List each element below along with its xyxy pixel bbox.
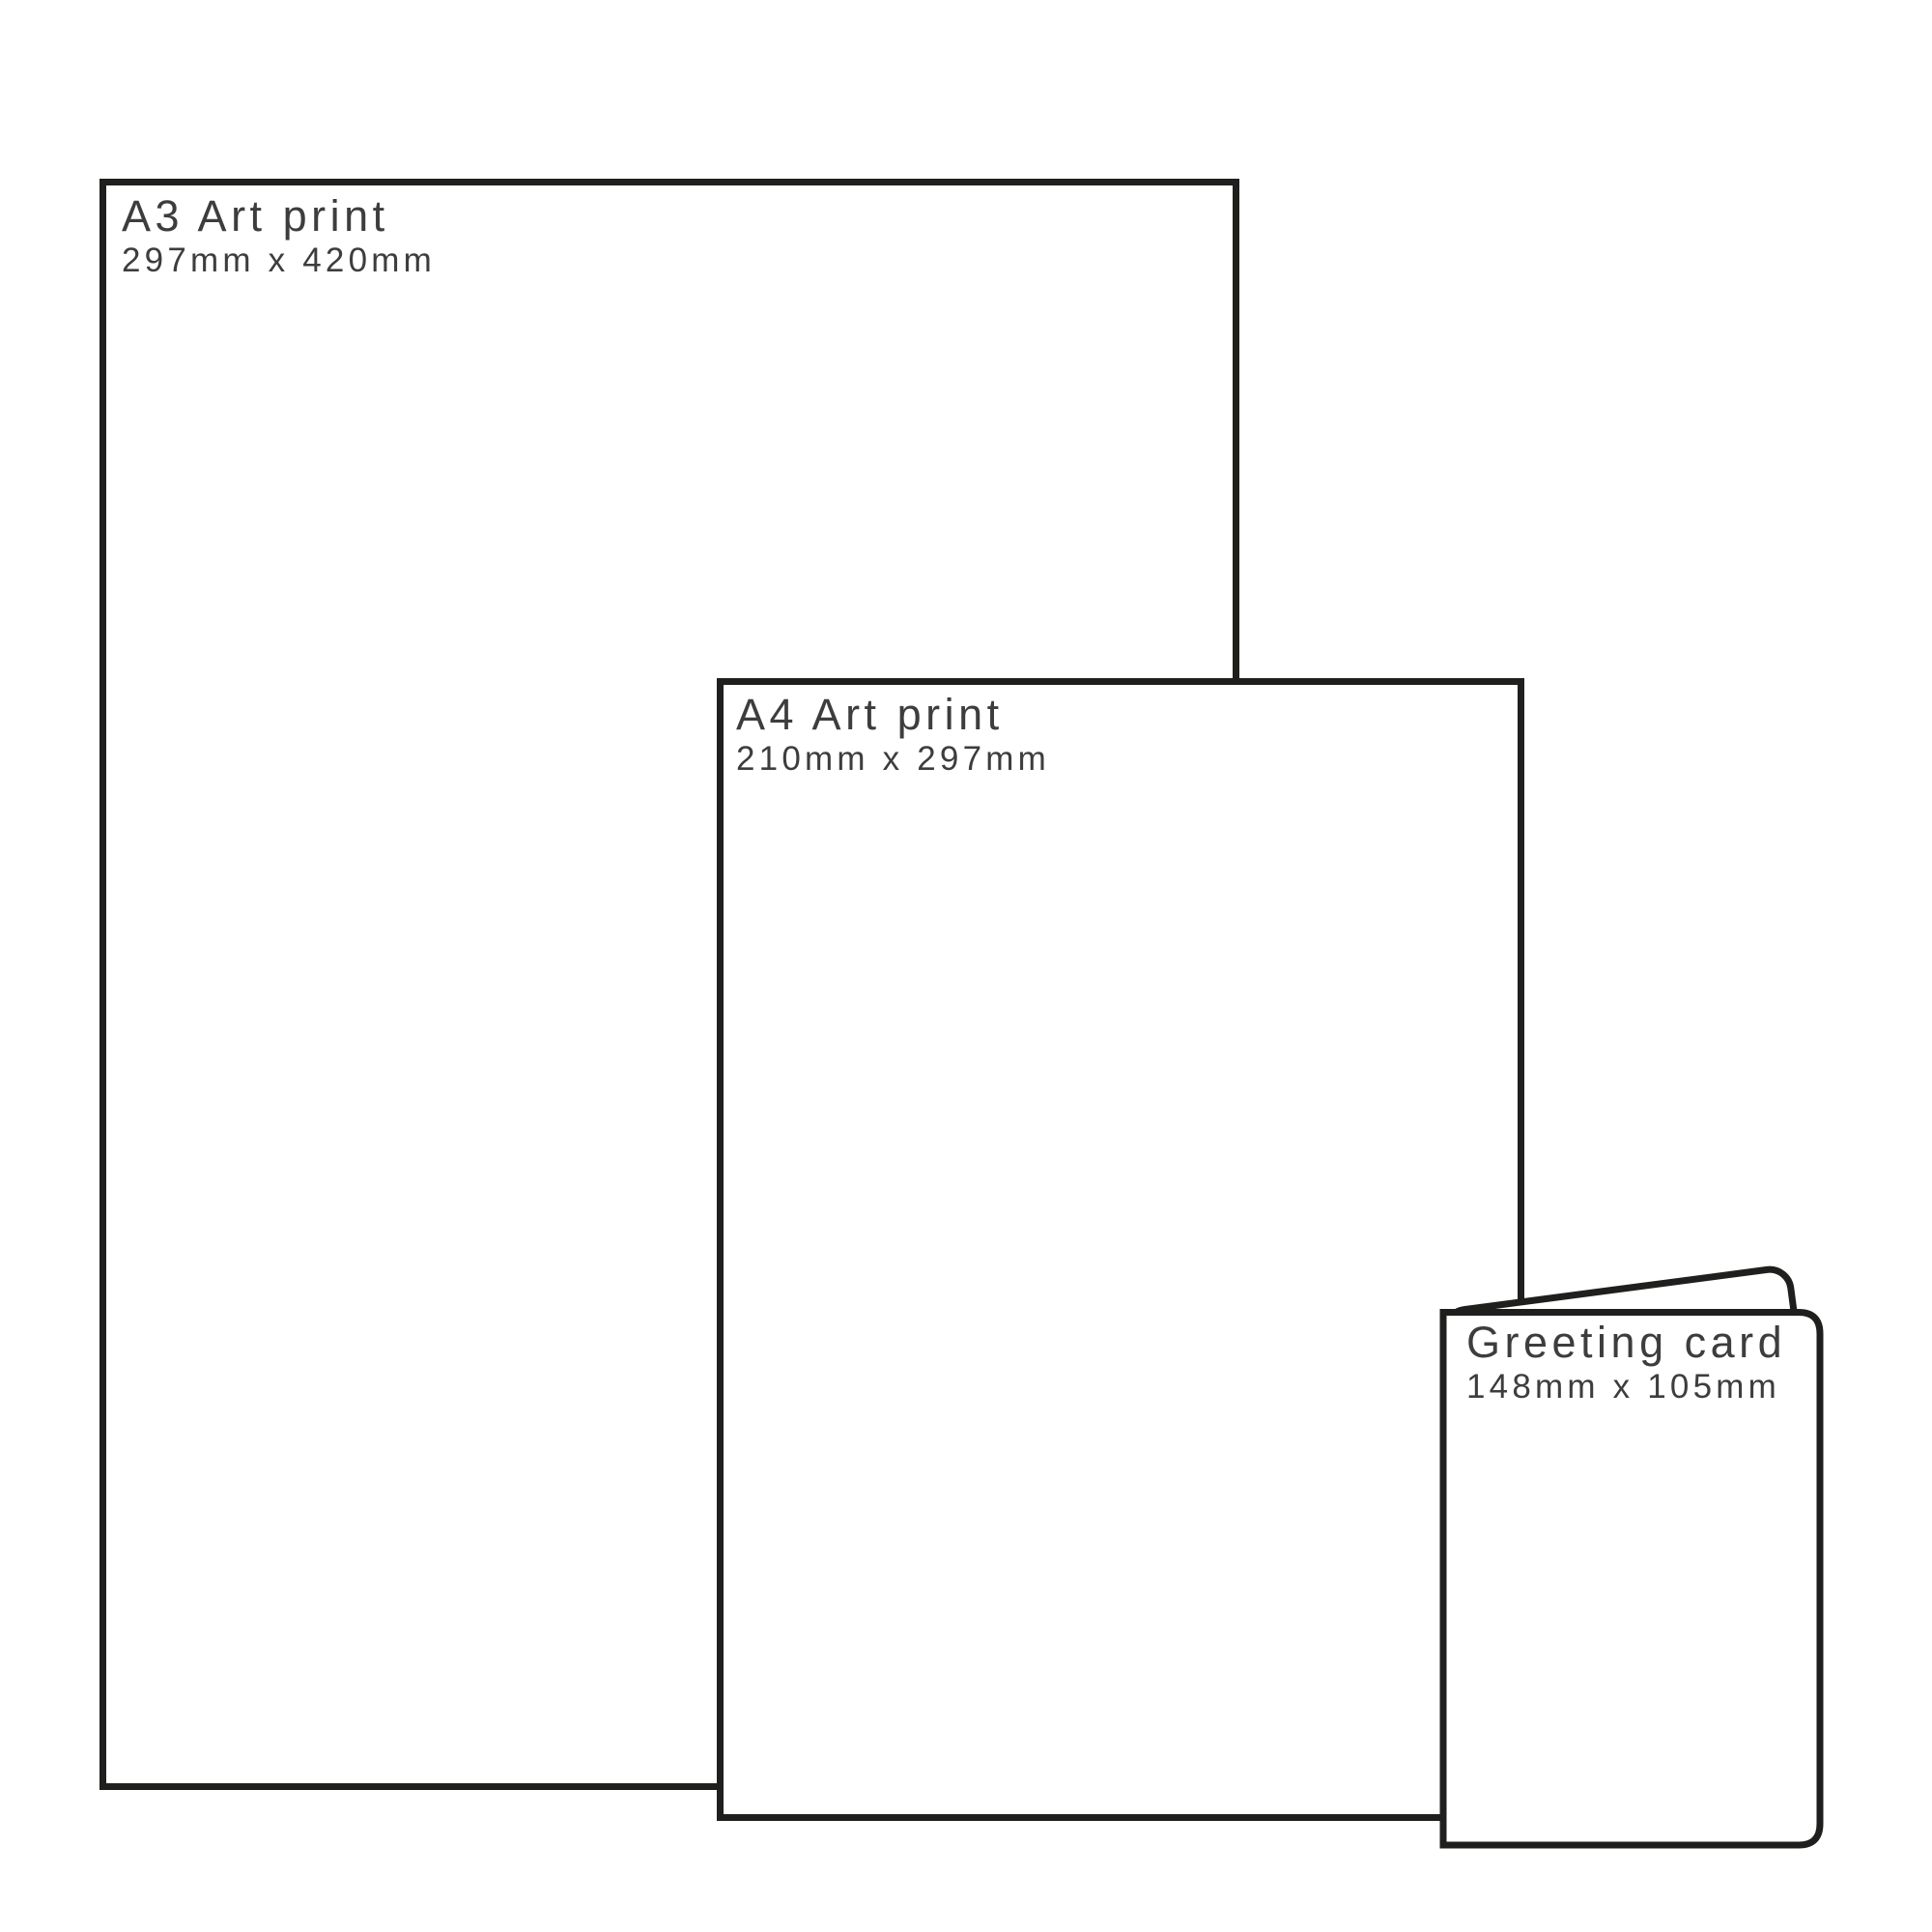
greeting-card-front-outline	[1443, 1313, 1820, 1846]
size-outlines-drawing	[0, 0, 1932, 1932]
a4-sheet-outline	[721, 682, 1521, 1818]
size-comparison-diagram: A3 Art print 297mm x 420mm A4 Art print …	[0, 0, 1932, 1932]
